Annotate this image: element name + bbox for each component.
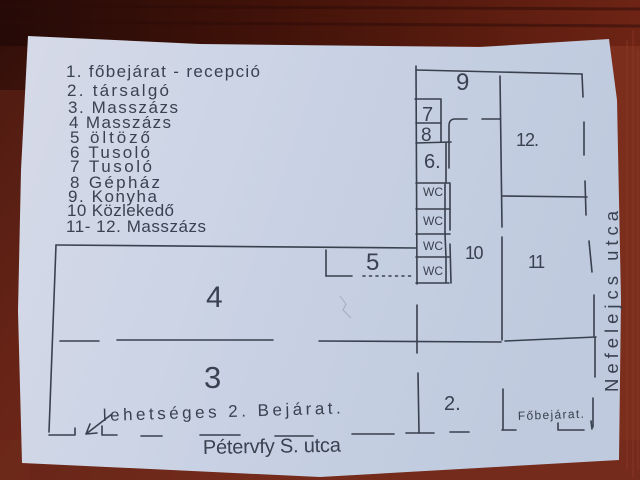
svg-text:11- 12. Masszázs: 11- 12. Masszázs [66, 217, 206, 236]
svg-text:9: 9 [456, 69, 469, 96]
svg-text:12.: 12. [516, 130, 538, 150]
svg-text:2.: 2. [444, 393, 461, 415]
svg-text:1. főbejárat - recepció: 1. főbejárat - recepció [66, 62, 260, 81]
svg-text:WC: WC [423, 264, 443, 278]
svg-text:6.: 6. [424, 151, 441, 173]
svg-text:11: 11 [528, 252, 545, 272]
svg-text:3: 3 [204, 360, 221, 395]
svg-text:10: 10 [465, 243, 484, 263]
svg-text:Pétervfy S. utca: Pétervfy S. utca [203, 435, 342, 459]
svg-text:Főbejárat.: Főbejárat. [518, 407, 584, 423]
svg-text:4: 4 [206, 281, 223, 314]
svg-text:8: 8 [421, 125, 432, 146]
svg-text:WC: WC [423, 239, 443, 253]
svg-text:WC: WC [423, 185, 443, 199]
svg-text:7: 7 [422, 104, 433, 126]
svg-text:5: 5 [366, 249, 379, 276]
svg-text:WC: WC [423, 214, 443, 228]
